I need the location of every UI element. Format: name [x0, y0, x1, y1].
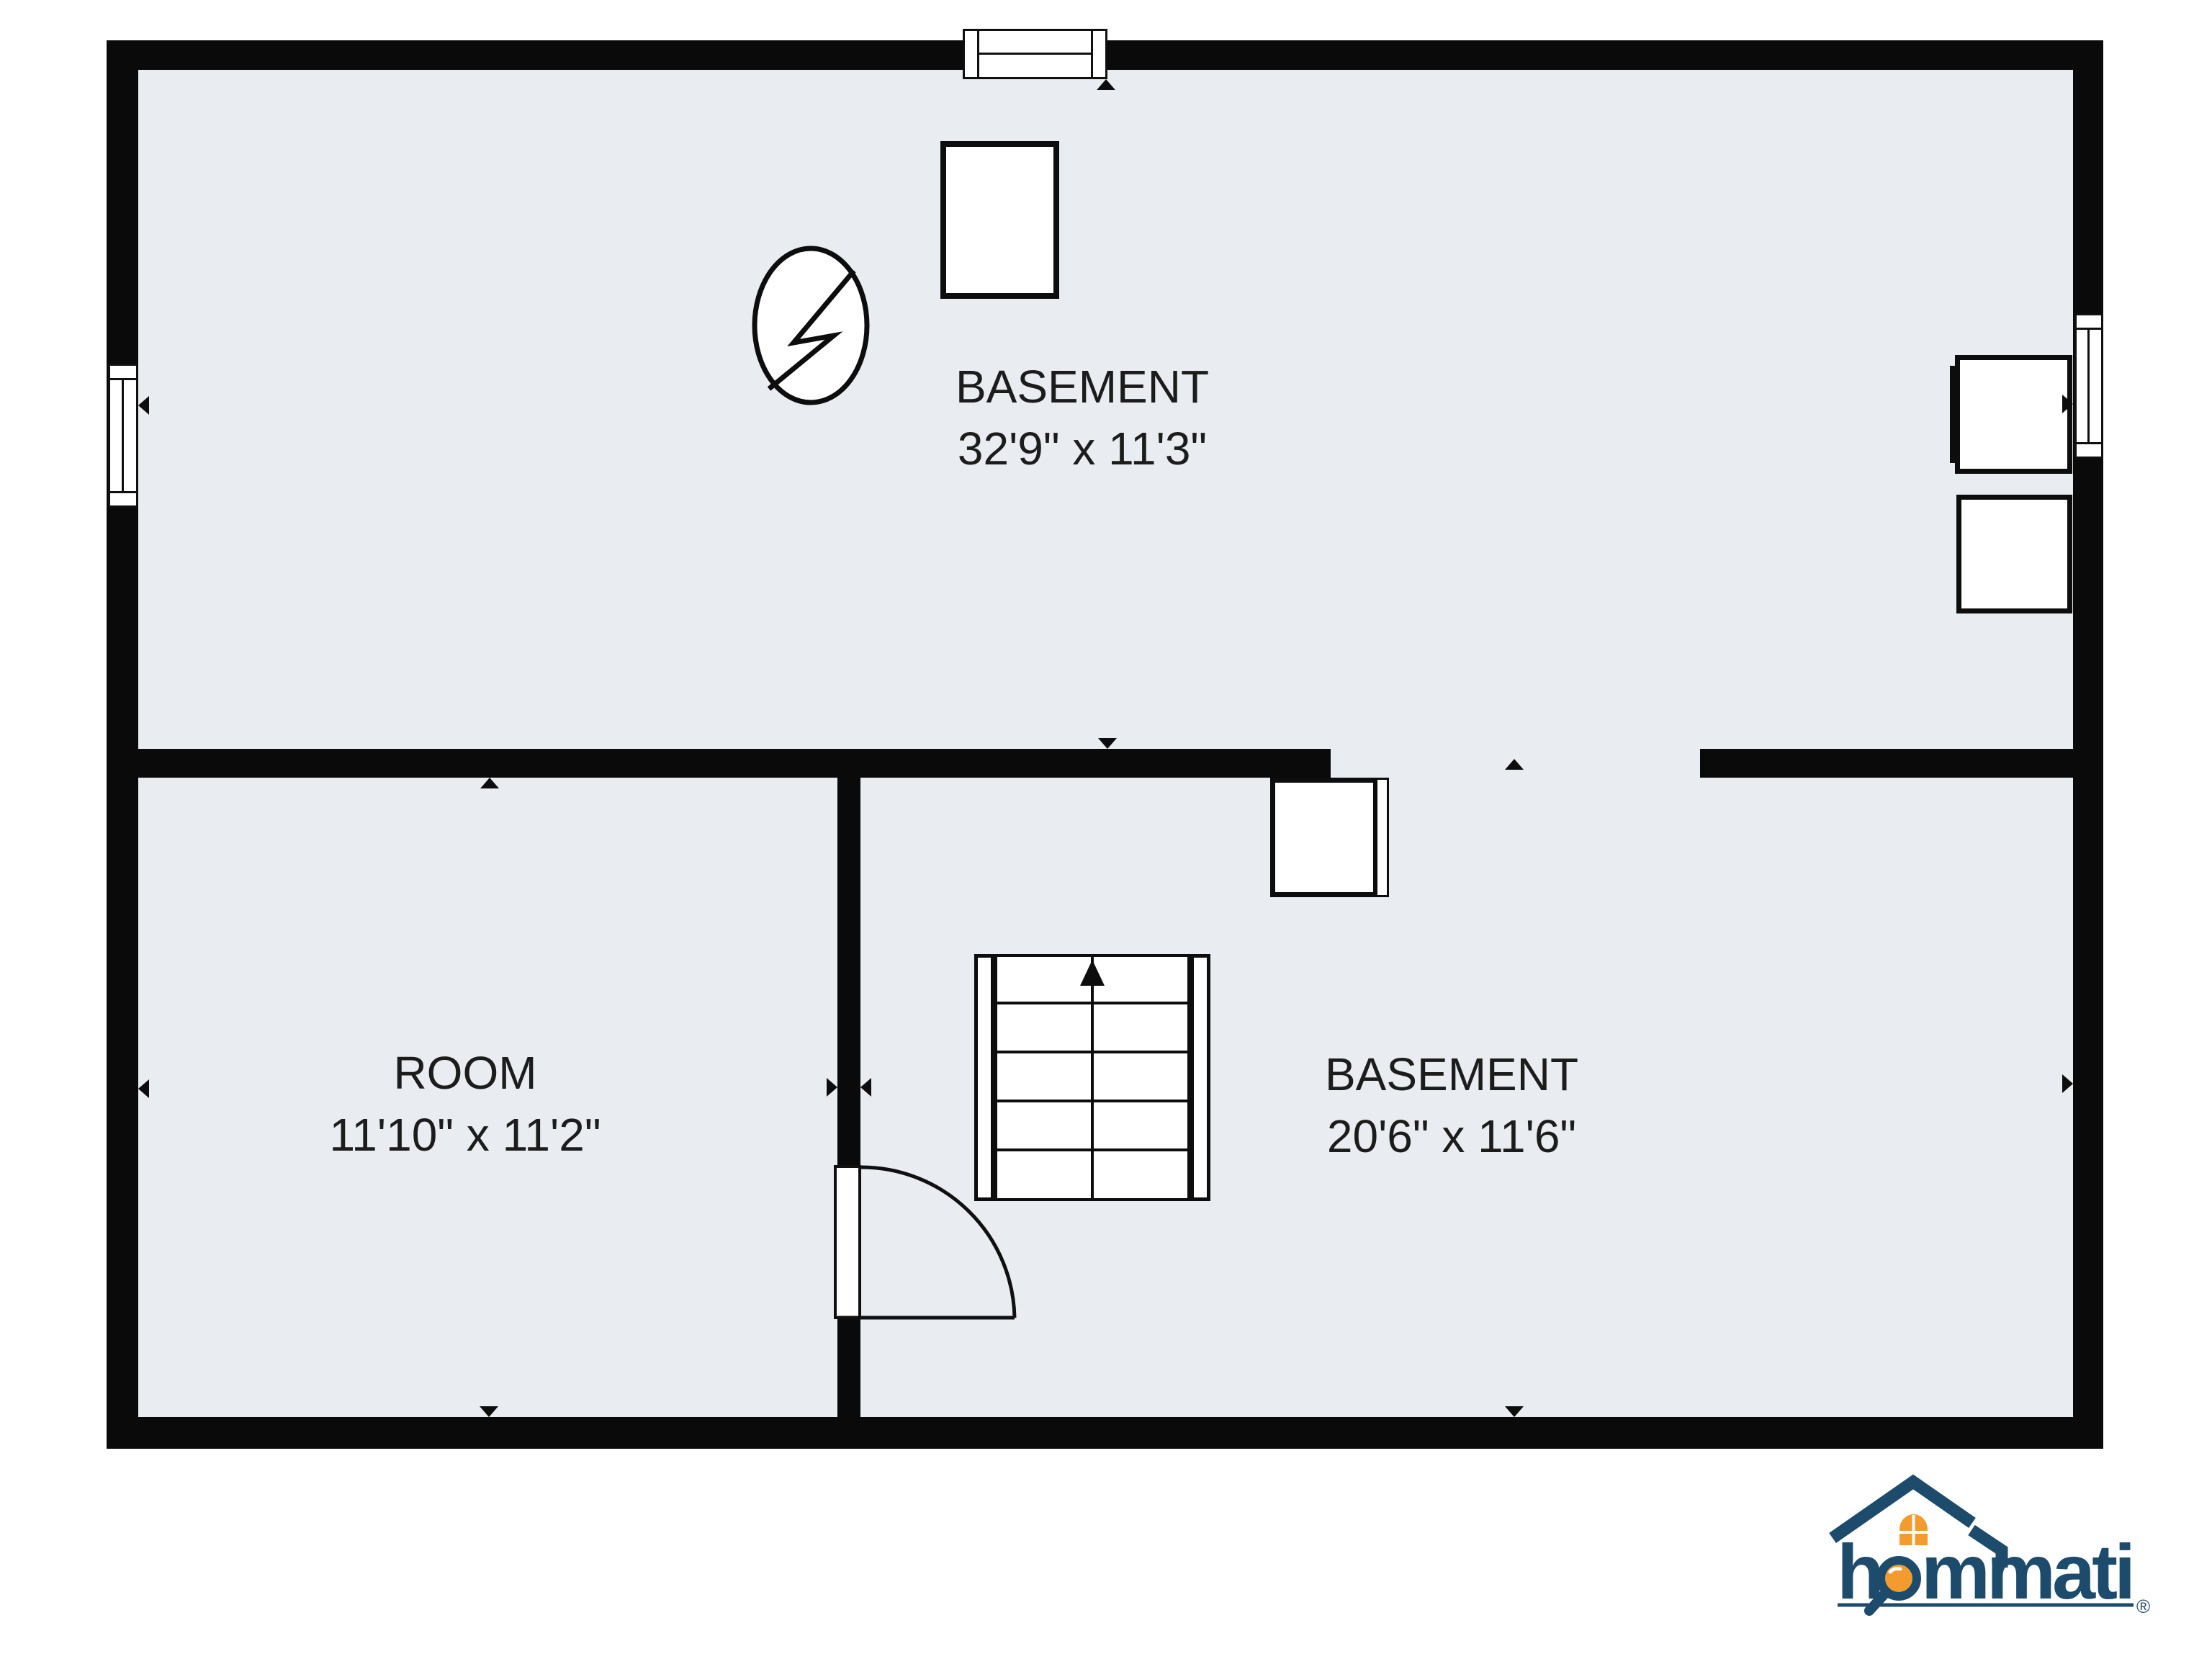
measure-arrow-icon [1505, 1406, 1524, 1417]
hommati-logo: h mmati ® [1825, 1469, 2171, 1635]
door-leaf [834, 1165, 861, 1319]
room-label-basement-top: BASEMENT 32'9" x 11'3" [956, 356, 1209, 480]
logo-window-icon [1899, 1514, 1928, 1545]
utility-box-top [940, 141, 1059, 299]
measure-arrow-icon [2062, 395, 2073, 413]
window-right-wall [2074, 313, 2103, 459]
utility-box-center [1270, 778, 1378, 897]
measure-arrow-icon [1505, 759, 1524, 770]
appliance-right-upper [1955, 355, 2072, 474]
room-name: BASEMENT [956, 356, 1209, 418]
wall-middle-right-segment [1700, 749, 2103, 778]
stair-stringer-right [1190, 954, 1210, 1201]
room-label-basement-right: BASEMENT 20'6" x 11'6" [1325, 1043, 1578, 1167]
room-dimensions: 32'9" x 11'3" [956, 418, 1209, 480]
wall-middle-left-segment [107, 749, 1331, 778]
measure-arrow-icon [860, 1078, 871, 1097]
logo-registered-mark: ® [2136, 1596, 2150, 1617]
appliance-door-bar [1950, 366, 1960, 463]
wall-right [2073, 40, 2103, 1449]
room-name: ROOM [329, 1042, 601, 1104]
room-dimensions: 11'10" x 11'2" [329, 1104, 601, 1166]
measure-arrow-icon [2062, 1074, 2073, 1093]
window-glass-line [2087, 328, 2090, 444]
measure-arrow-icon [138, 396, 149, 415]
window-frame-cap [1091, 30, 1105, 78]
room-name: BASEMENT [1325, 1043, 1578, 1105]
window-left-wall [108, 364, 138, 508]
room-dimensions: 20'6" x 11'6" [1325, 1105, 1578, 1167]
window-top-wall [963, 29, 1107, 79]
window-frame-cap [2076, 442, 2102, 457]
stair-stringer-left [974, 954, 994, 1201]
measure-arrow-icon [480, 778, 499, 788]
utility-box-flue [1375, 778, 1389, 897]
wall-left [107, 40, 138, 1449]
wall-room-divider-lower [837, 1319, 860, 1417]
window-frame-cap [109, 491, 137, 505]
logo-magnifier-icon [1869, 1560, 1917, 1611]
room-label-room: ROOM 11'10" x 11'2" [329, 1042, 601, 1166]
logo-text-mmati: mmati [1921, 1528, 2132, 1615]
logo-house-icon [1833, 1482, 2002, 1568]
window-glass-line [977, 53, 1093, 55]
logo-text-h: h [1837, 1528, 1884, 1615]
measure-arrow-icon [1098, 738, 1117, 749]
stair-center-line [1091, 957, 1094, 1198]
measure-arrow-icon [480, 1406, 498, 1417]
window-glass-line [122, 378, 124, 493]
measure-arrow-icon [827, 1078, 837, 1097]
basement-floor-plan: BASEMENT 32'9" x 11'3" ROOM 11'10" x 11'… [0, 0, 2212, 1659]
appliance-right-lower [1956, 495, 2072, 613]
wall-bottom [107, 1417, 2103, 1449]
wall-room-divider-upper [837, 749, 860, 1165]
staircase [974, 954, 1210, 1201]
stair-direction-up-arrow-icon [1080, 960, 1105, 986]
measure-arrow-icon [1097, 79, 1115, 90]
measure-arrow-icon [138, 1079, 149, 1098]
